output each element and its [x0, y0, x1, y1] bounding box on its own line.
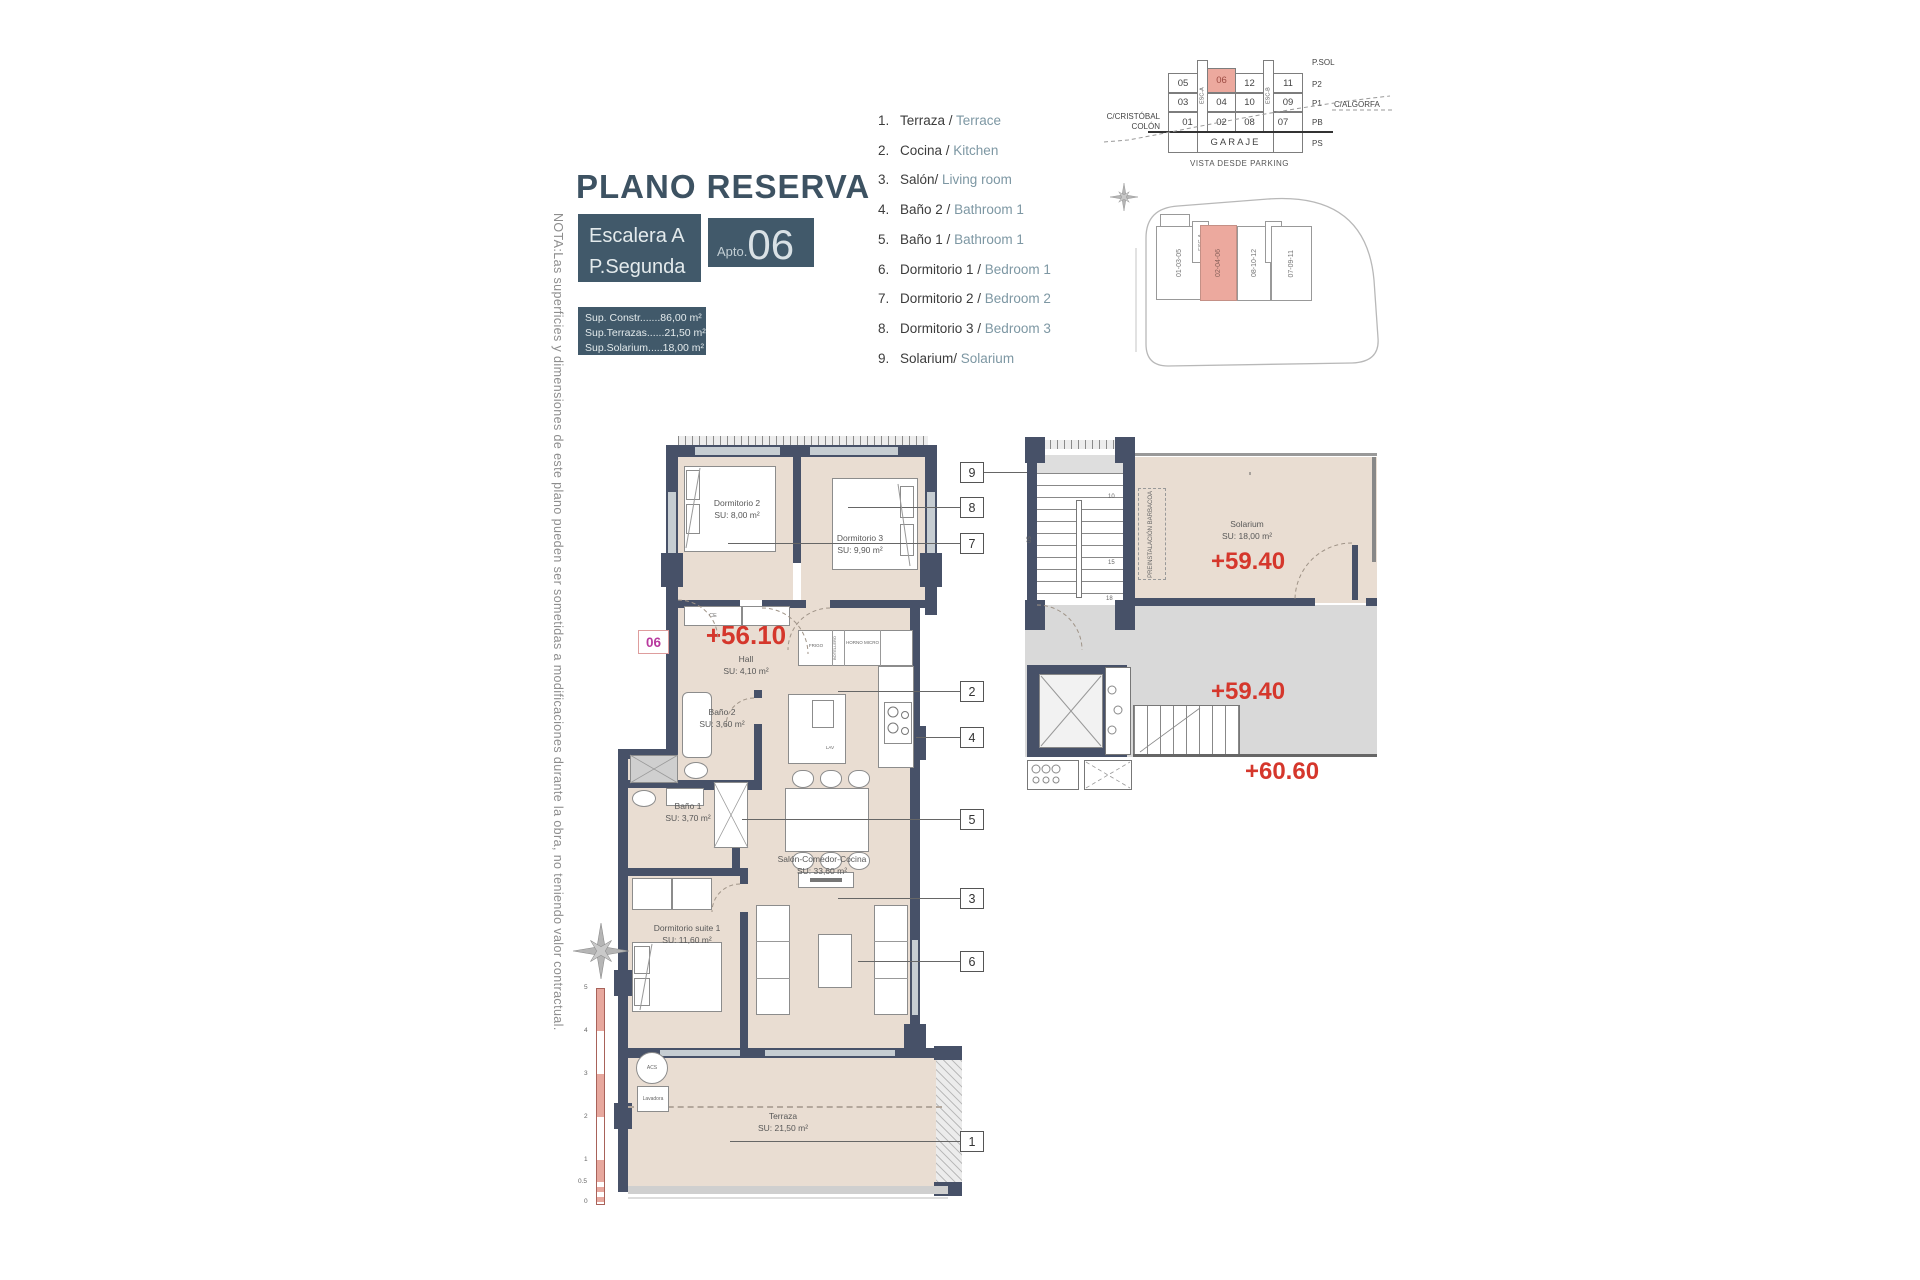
apartment-badge: 06: [638, 630, 669, 654]
wall-pier: [1025, 437, 1045, 463]
wall-segment: [793, 445, 801, 563]
scale-tick: 3: [584, 1070, 588, 1077]
stair-tower-a: ESC-A: [1197, 60, 1208, 132]
scale-tick: 1: [584, 1156, 588, 1163]
room-label-bano1: Baño 1 SU: 3,70 m²: [665, 800, 710, 825]
ref-marker-bedroom1: 6: [960, 951, 984, 972]
page-title: PLANO RESERVA: [576, 168, 870, 206]
level-label: P1: [1312, 99, 1322, 108]
wall-pier: [934, 1046, 962, 1060]
closet: [672, 878, 712, 910]
sofa-cushion-line: [756, 941, 790, 942]
stair-landing: [1037, 455, 1123, 473]
scale-segment: [597, 1074, 604, 1117]
leader-line: [728, 543, 962, 544]
level-mark-lower: +60.60: [1245, 758, 1319, 786]
legend-item: 9.Solarium/ Solarium: [878, 351, 1014, 366]
legend-item: 8.Dormitorio 3 / Bedroom 3: [878, 321, 1051, 336]
wall-pier: [614, 970, 632, 996]
stair-mark: 15: [1108, 560, 1115, 567]
unit-cell: 03: [1168, 93, 1198, 112]
leader-line: [730, 1141, 962, 1142]
window: [912, 940, 918, 1015]
apartment-box: Apto. 06: [708, 218, 814, 267]
unit-cell: 09: [1273, 93, 1303, 112]
wall-segment: [1135, 453, 1377, 456]
toilet: [632, 790, 656, 807]
legend-item: 1.Terraza / Terrace: [878, 113, 1001, 128]
wall-segment: [740, 876, 748, 884]
sliding-door: [660, 1050, 740, 1056]
sideboard-detail: [810, 878, 842, 882]
legend-item: 7.Dormitorio 2 / Bedroom 2: [878, 291, 1051, 306]
scale-segment: [597, 1160, 604, 1182]
oven-label: HORNO MICRO: [846, 641, 879, 646]
compass-icon: [1110, 183, 1138, 211]
legend-item: 2.Cocina / Kitchen: [878, 143, 998, 158]
garage-cell: GARAJE: [1197, 132, 1274, 153]
wardrobe: [714, 782, 748, 848]
pillow: [634, 978, 650, 1006]
stair-tower-b: ESC-B: [1263, 60, 1274, 132]
water-heater: ACS: [636, 1052, 668, 1084]
leader-line: [838, 691, 962, 692]
terrace-dashed-line: [628, 1106, 942, 1108]
terrace-front-railing: [628, 1186, 948, 1194]
empty-cell: [1273, 132, 1303, 153]
window: [668, 492, 676, 554]
unit-cell: 10: [1235, 93, 1264, 112]
level-mark-roof-terrace: +59.40: [1211, 678, 1285, 706]
ground-line: [1148, 131, 1333, 133]
ref-marker-bathroom1: 5: [960, 809, 984, 830]
wall-segment: [1366, 598, 1377, 606]
barbecue-label: PREINSTALACIÓN BARBACOA: [1148, 491, 1155, 578]
chair: [848, 770, 870, 788]
sup-terrazas: Sup.Terrazas......21,50 m²: [585, 326, 706, 341]
utility-box: [1027, 760, 1079, 790]
ref-marker-livingroom: 3: [960, 888, 984, 909]
legend-item: 5.Baño 1 / Bathroom 1: [878, 232, 1024, 247]
stair-mark: 10: [1108, 494, 1115, 501]
ref-marker-bathroom2: 4: [960, 727, 984, 748]
surface-areas-box: Sup. Constr.......86,00 m² Sup.Terrazas.…: [578, 307, 706, 355]
washing-machine: Lavadora: [637, 1086, 669, 1112]
legend-item: 4.Baño 2 / Bathroom 1: [878, 202, 1024, 217]
stair-railing: [1036, 440, 1124, 449]
shower: [630, 755, 678, 783]
level-label: P2: [1312, 80, 1322, 89]
toilet: [684, 762, 708, 779]
sup-constr: Sup. Constr.......86,00 m²: [585, 311, 706, 326]
sofa: [874, 905, 908, 1015]
pillow: [900, 486, 914, 518]
ref-marker-solarium: 9: [960, 462, 984, 483]
door-leaf: [1352, 545, 1358, 600]
window: [695, 447, 780, 455]
door-opening: [806, 600, 830, 608]
wall-segment: [1372, 457, 1376, 562]
scale-tick: 4: [584, 1027, 588, 1034]
fridge-label: FRIGO: [800, 644, 832, 649]
wall-pier: [661, 553, 683, 587]
pillow: [686, 470, 700, 500]
unit-cell-highlighted: 06: [1207, 68, 1236, 93]
ref-marker-bedroom3: 8: [960, 497, 984, 518]
wall-segment: [1135, 598, 1315, 606]
barbecue-preinstall-zone: PREINSTALACIÓN BARBACOA: [1138, 488, 1166, 580]
wall-segment: [622, 868, 748, 876]
level-mark-solarium: +59.40: [1211, 548, 1285, 576]
counter-divider: [880, 630, 881, 666]
stair-mark: 05: [1027, 530, 1034, 550]
leader-line: [858, 961, 962, 962]
counter-divider: [844, 630, 845, 666]
scale-tick: 2: [584, 1113, 588, 1120]
room-label-dorm2: Dormitorio 2 SU: 8,00 m²: [714, 497, 760, 522]
site-section-label: 01-03-05: [1176, 249, 1183, 277]
ref-marker-terrace: 1: [960, 1131, 984, 1152]
wall-pier: [920, 553, 942, 587]
balcony-railing: [678, 436, 928, 445]
terrace-edge-line: [628, 1197, 948, 1199]
sliding-door: [765, 1050, 895, 1056]
leader-line: [916, 737, 962, 738]
unit-cell: 11: [1273, 73, 1303, 93]
legend-item: 6.Dormitorio 1 / Bedroom 1: [878, 262, 1051, 277]
closet: [632, 878, 672, 910]
room-label-terraza: Terraza SU: 21,50 m²: [758, 1110, 808, 1135]
coffee-table: [818, 934, 852, 988]
wall-segment: [754, 724, 762, 790]
room-label-hall: Hall SU: 4,10 m²: [723, 653, 768, 678]
scale-tick: 0.5: [578, 1178, 587, 1185]
room-label-bano2: Baño 2 SU: 3,60 m²: [699, 706, 744, 731]
stair-label: Escalera A: [589, 221, 701, 252]
unit-cell: 05: [1168, 73, 1198, 93]
elevation-caption: VISTA DESDE PARKING: [1190, 159, 1289, 168]
window: [810, 447, 898, 455]
scale-segment: [597, 1197, 604, 1202]
exterior-stairs: [1133, 705, 1240, 755]
scale-segment: [597, 1187, 604, 1192]
chair: [792, 770, 814, 788]
sup-solarium: Sup.Solarium.....18,00 m²: [585, 341, 706, 356]
wall-pier: [1115, 600, 1135, 630]
island-sink: [812, 700, 834, 728]
unit-cell: 02: [1207, 112, 1236, 132]
empty-cell: [1168, 132, 1198, 153]
site-section-highlighted: 02-04-06: [1200, 225, 1237, 301]
wall-pier: [1025, 600, 1045, 630]
sofa-cushion-line: [874, 978, 908, 979]
floor-plan-sheet: NOTA:Las superficies y dimensiones de es…: [0, 0, 1920, 1280]
room-label-suite: Dormitorio suite 1 SU: 11,60 m²: [654, 922, 721, 947]
sofa-cushion-line: [756, 978, 790, 979]
apartment-label: Apto.: [717, 244, 747, 264]
botellero-label: BOTELLERO: [833, 633, 837, 663]
wall-segment: [1133, 754, 1377, 757]
street-right-label: C/ALGORFA: [1334, 100, 1380, 109]
wall-pier: [1115, 437, 1135, 463]
elevator-cab: [1039, 674, 1103, 748]
lav-label: LAV: [820, 746, 840, 751]
utility-box: [1084, 760, 1132, 790]
scale-tick: 5: [584, 984, 588, 991]
unit-cell: 04: [1207, 93, 1236, 112]
street-left-label: C/CRISTÓBAL COLÓN: [1104, 112, 1160, 133]
leader-line: [848, 507, 962, 508]
stair-stringer: [1076, 500, 1082, 598]
sofa-cushion-line: [874, 941, 908, 942]
room-label-salon: Salón-Comedor-Cocina SU: 33,60 m²: [778, 853, 867, 878]
site-section-label: 08-10-12: [1251, 249, 1258, 277]
chair: [820, 770, 842, 788]
floor-label: P.Segunda: [589, 252, 701, 283]
level-label: P.SOL: [1312, 58, 1335, 67]
wall-segment: [740, 912, 748, 1058]
dining-table: [785, 788, 869, 852]
scale-segment: [597, 989, 604, 1031]
room-label-solarium: Solarium SU: 18,00 m²: [1222, 518, 1272, 543]
apartment-number: 06: [747, 226, 794, 264]
site-section: 07-09-11: [1271, 226, 1312, 301]
ref-marker-bedroom2: 7: [960, 533, 984, 554]
unit-cell: 08: [1235, 112, 1264, 132]
legend-item: 3.Salón/ Living room: [878, 172, 1012, 187]
level-mark-hall: +56.10: [706, 620, 786, 651]
pillow: [634, 946, 650, 974]
sofa: [756, 905, 790, 1015]
leader-line: [838, 898, 962, 899]
pillow: [900, 524, 914, 556]
disclaimer-note: NOTA:Las superficies y dimensiones de es…: [551, 213, 565, 1103]
pillow: [686, 504, 700, 534]
room-label-dorm3: Dormitorio 3 SU: 9,90 m²: [837, 532, 883, 557]
leader-line: [742, 819, 962, 820]
level-label: PB: [1312, 118, 1323, 127]
site-section-label: 02-04-06: [1215, 249, 1222, 277]
site-section-label: 07-09-11: [1288, 250, 1295, 278]
terrace-side-railing: [936, 1055, 962, 1189]
wall-segment: [754, 690, 762, 698]
level-label: PS: [1312, 139, 1323, 148]
hob: [884, 702, 912, 744]
ref-marker-kitchen: 2: [960, 681, 984, 702]
window: [927, 492, 935, 554]
scale-tick: 0: [584, 1198, 588, 1205]
stair-mark: 18: [1106, 596, 1113, 603]
unit-cell: 12: [1235, 73, 1264, 93]
service-shaft: [1105, 667, 1131, 755]
stair-floor-box: Escalera A P.Segunda: [578, 214, 701, 282]
